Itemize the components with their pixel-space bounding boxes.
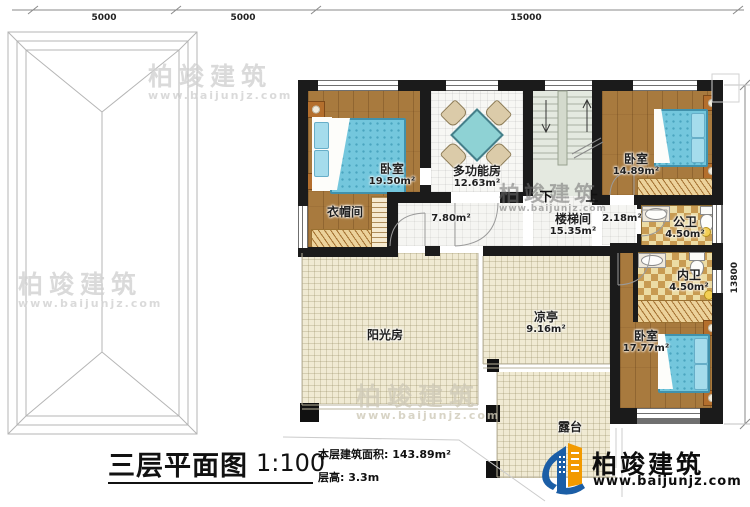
wall [610, 408, 637, 424]
pillow [314, 150, 329, 177]
dim-label-top-2: 5000 [230, 13, 255, 23]
window [446, 80, 498, 91]
room-label-public-bath: 公卫 4.50m² [665, 215, 704, 241]
room-area: 7.80m² [431, 213, 470, 225]
room-area: 2.18m² [602, 213, 641, 225]
wall [610, 253, 620, 408]
pillow [694, 338, 708, 364]
nightstand [307, 101, 325, 118]
room-name: 多功能房 [453, 164, 501, 178]
watermark-url: www.baijunjz.com [18, 298, 162, 310]
room-area: 12.63m² [454, 178, 500, 190]
window [545, 80, 592, 91]
column [486, 405, 500, 422]
dim-label-right: 13800 [730, 262, 740, 293]
brand-url: www.baijunjz.com [593, 474, 742, 489]
room-name: 露台 [558, 420, 582, 434]
wall [602, 195, 610, 205]
dim-label-top-1: 5000 [91, 13, 116, 23]
watermark: 柏竣建筑 www.baijunjz.com [148, 64, 292, 102]
wall [398, 80, 446, 91]
wall [634, 195, 712, 205]
room-label-bedroom2: 卧室 14.89m² [613, 152, 659, 178]
stair-label-up: 上 [585, 186, 598, 205]
room-label-landing: 2.18m² [602, 213, 641, 225]
stair-label-down: 下 [539, 186, 552, 205]
room-label-hallway: 7.80m² [431, 213, 470, 225]
pillow [691, 113, 705, 138]
wall [431, 192, 451, 203]
wall [697, 80, 723, 91]
wall [483, 246, 613, 256]
room-name: 内卫 [677, 268, 701, 282]
room-label-pavilion: 凉亭 9.16m² [526, 310, 565, 336]
room-area: 4.50m² [665, 229, 704, 241]
room-label-multifunction: 多功能房 12.63m² [453, 164, 501, 190]
wall [298, 247, 398, 257]
room-name: 卧室 [624, 152, 648, 166]
wall [637, 234, 641, 246]
room-area: 9.16m² [526, 324, 565, 336]
watermark-url: www.baijunjz.com [148, 90, 292, 102]
room-name: 衣帽间 [327, 205, 363, 219]
watermark: 柏竣建筑 www.baijunjz.com [18, 272, 162, 310]
roof-outline [8, 32, 197, 434]
room-name: 卧室 [380, 162, 404, 176]
title-underline [108, 482, 313, 484]
wall [425, 246, 440, 256]
window [712, 270, 723, 293]
wall [637, 203, 641, 209]
pillow [691, 138, 705, 163]
floor-area-note: 本层建筑面积: 143.89m² [318, 446, 451, 462]
wall [420, 91, 431, 168]
room-label-bedroom3: 卧室 17.77m² [623, 329, 669, 355]
dim-label-top-3: 15000 [510, 13, 541, 23]
room-area: 14.89m² [613, 166, 659, 178]
window [298, 206, 308, 248]
watermark-name: 柏竣建筑 [18, 272, 162, 298]
room-name: 楼梯间 [555, 212, 591, 226]
room-label-sunroom: 阳光房 [367, 328, 403, 342]
floor-plan: 柏竣建筑 www.baijunjz.com 柏竣建筑 www.baijunjz.… [0, 0, 750, 507]
room-label-private-bath: 内卫 4.50m² [669, 268, 708, 294]
column [300, 403, 319, 422]
column [487, 359, 499, 372]
wall [592, 80, 633, 91]
floor-landing [602, 205, 636, 245]
wall [500, 192, 523, 203]
room-label-bedroom1: 卧室 19.50m² [369, 162, 415, 188]
room-area: 4.50m² [669, 282, 708, 294]
wall [523, 91, 533, 196]
wall [700, 408, 723, 424]
wall [398, 192, 431, 203]
room-name: 阳光房 [367, 328, 403, 342]
watermark-url: www.baijunjz.com [356, 410, 500, 422]
window [637, 408, 700, 424]
room-label-cloakroom: 衣帽间 [327, 205, 363, 219]
room-label-terrace: 露台 [558, 420, 582, 434]
wall [498, 80, 545, 91]
wall [298, 91, 308, 206]
floor-height-note: 层高: 3.3m [318, 469, 379, 485]
room-area: 17.77m² [623, 343, 669, 355]
sink [645, 208, 667, 220]
room-label-stairwell: 楼梯间 15.35m² [550, 212, 596, 238]
watermark-name: 柏竣建筑 [148, 64, 292, 90]
wardrobe [311, 229, 373, 249]
room-area: 15.35m² [550, 226, 596, 238]
column [486, 461, 500, 478]
pillow [314, 122, 329, 149]
wall [712, 293, 723, 424]
sink [641, 255, 663, 266]
room-name: 公卫 [673, 215, 697, 229]
wall [712, 91, 723, 205]
wall [633, 250, 638, 322]
wall [712, 243, 723, 270]
plan-title: 三层平面图 [108, 444, 248, 483]
floor-stairwell [533, 91, 592, 196]
plan-scale: 1:100 [256, 449, 325, 477]
room-name: 凉亭 [534, 310, 558, 324]
room-name: 卧室 [634, 329, 658, 343]
window [712, 205, 723, 243]
wall [636, 245, 712, 252]
window [318, 80, 398, 91]
pillow [694, 364, 708, 390]
room-area: 19.50m² [369, 176, 415, 188]
wall [298, 80, 318, 91]
window [633, 80, 697, 91]
